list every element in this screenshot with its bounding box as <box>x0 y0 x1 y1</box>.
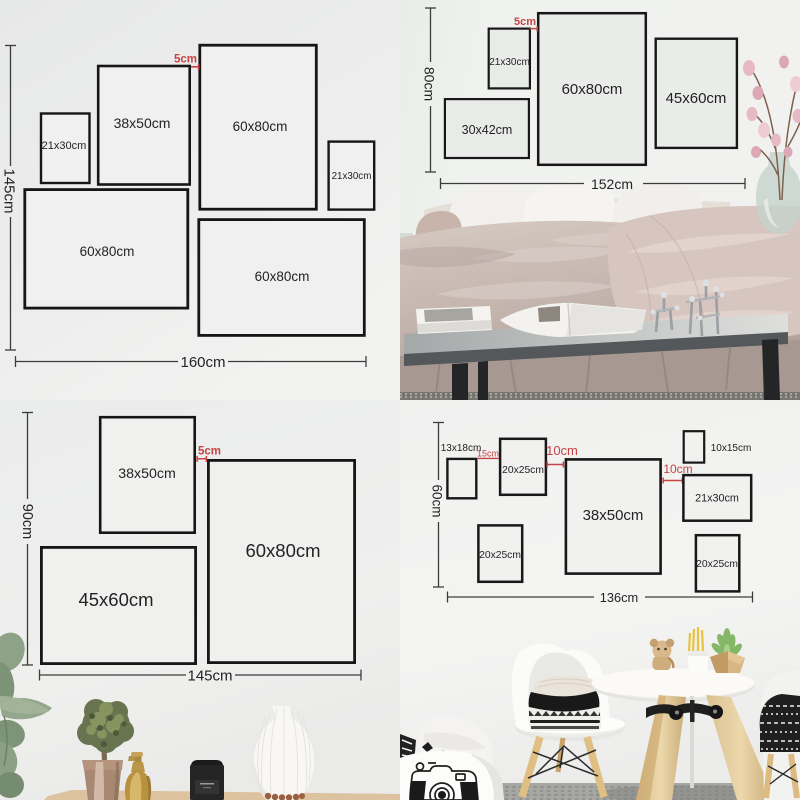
svg-text:20x25cm: 20x25cm <box>479 550 521 561</box>
svg-text:145cm: 145cm <box>187 668 232 685</box>
svg-text:145cm: 145cm <box>1 168 18 213</box>
svg-text:10cm: 10cm <box>546 443 578 458</box>
svg-text:21x30cm: 21x30cm <box>695 493 739 505</box>
svg-text:5cm: 5cm <box>174 54 197 66</box>
svg-text:21x30cm: 21x30cm <box>42 140 87 152</box>
svg-text:20x25cm: 20x25cm <box>502 465 544 476</box>
svg-text:45x60cm: 45x60cm <box>78 589 153 610</box>
svg-text:10x15cm: 10x15cm <box>711 443 752 454</box>
svg-text:15cm: 15cm <box>477 449 499 459</box>
svg-text:21x30cm: 21x30cm <box>489 57 530 68</box>
svg-text:30x42cm: 30x42cm <box>462 123 513 137</box>
svg-text:38x50cm: 38x50cm <box>583 507 644 524</box>
svg-text:160cm: 160cm <box>180 354 225 371</box>
svg-text:60x80cm: 60x80cm <box>80 244 135 259</box>
svg-text:60x80cm: 60x80cm <box>233 119 288 134</box>
svg-text:152cm: 152cm <box>591 176 633 192</box>
svg-text:80cm: 80cm <box>422 67 438 101</box>
svg-text:5cm: 5cm <box>514 16 536 28</box>
svg-text:136cm: 136cm <box>600 590 638 605</box>
svg-text:5cm: 5cm <box>198 446 221 458</box>
svg-text:45x60cm: 45x60cm <box>666 90 727 107</box>
svg-text:38x50cm: 38x50cm <box>114 115 171 131</box>
svg-text:21x30cm: 21x30cm <box>332 171 372 182</box>
svg-text:60x80cm: 60x80cm <box>255 269 310 284</box>
svg-text:60cm: 60cm <box>430 484 445 517</box>
svg-text:60x80cm: 60x80cm <box>245 540 320 561</box>
svg-text:38x50cm: 38x50cm <box>118 466 176 482</box>
svg-text:90cm: 90cm <box>19 504 35 539</box>
svg-text:20x25cm: 20x25cm <box>696 559 738 570</box>
svg-text:13x18cm: 13x18cm <box>441 443 482 454</box>
svg-text:60x80cm: 60x80cm <box>562 81 623 98</box>
